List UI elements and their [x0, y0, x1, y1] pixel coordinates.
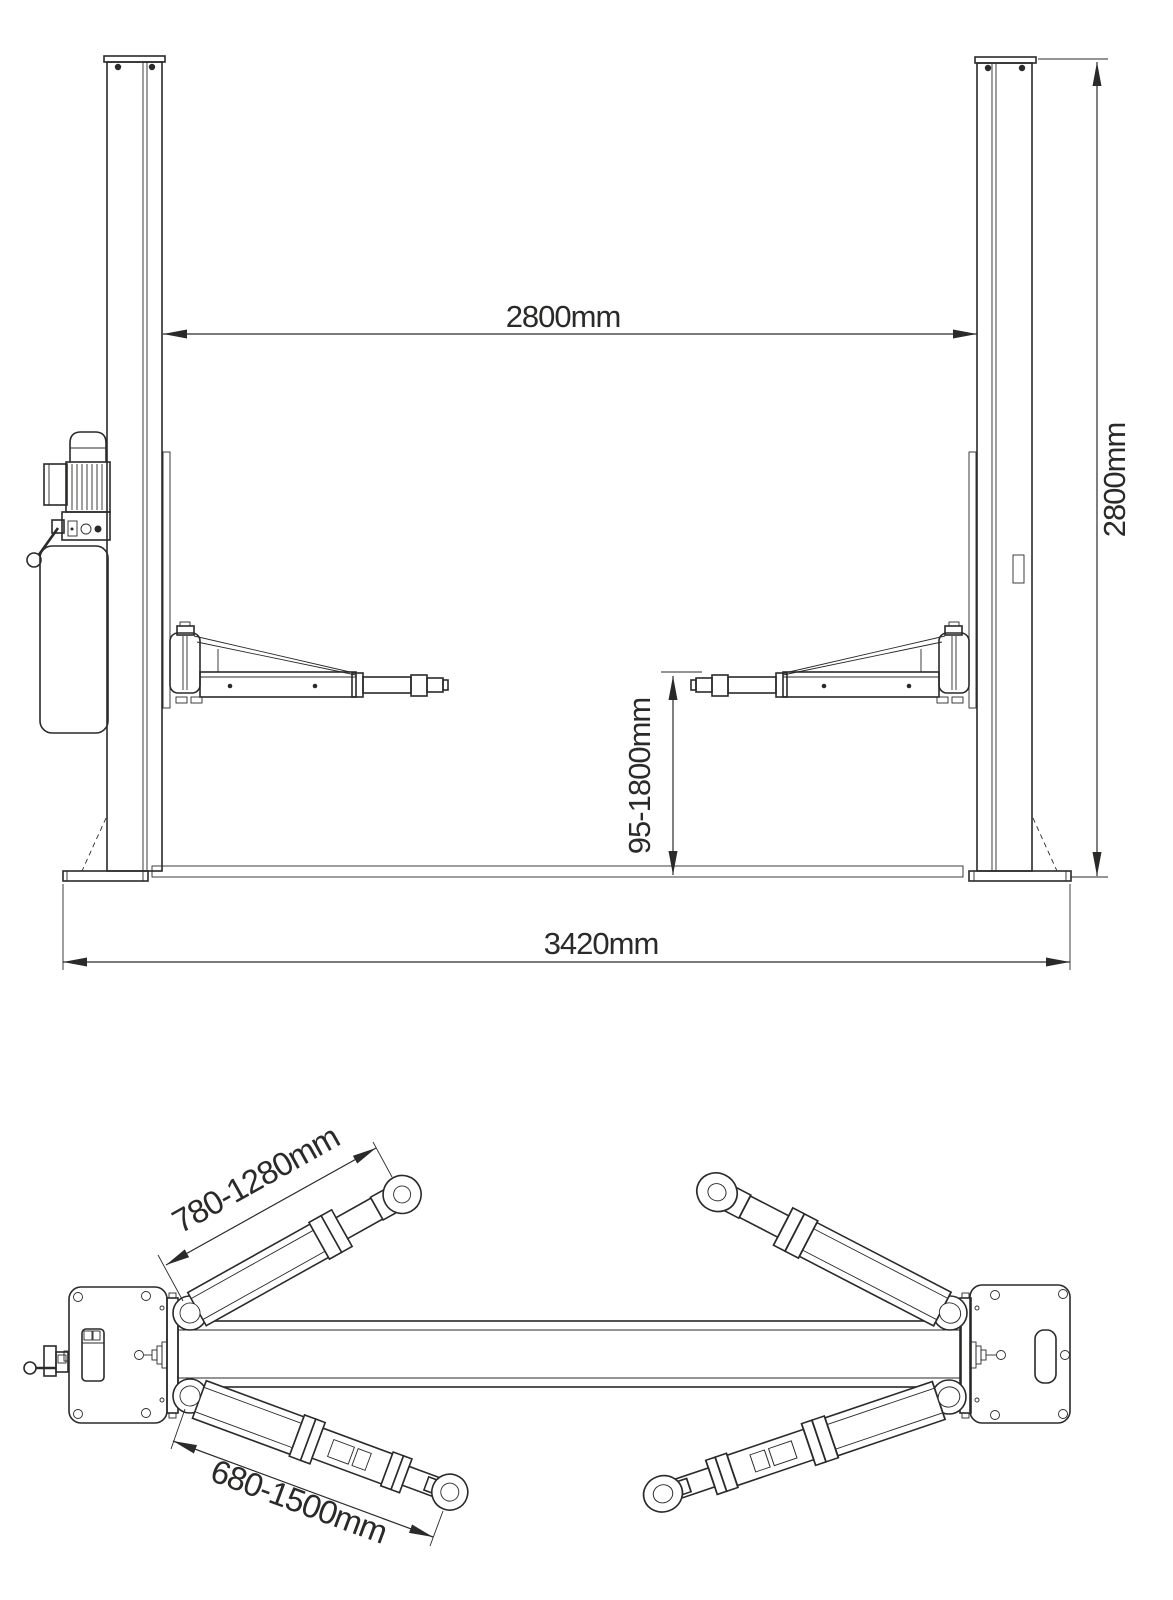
arm-extension: [728, 677, 776, 693]
lift-arm-left-elevation: [170, 622, 448, 703]
plan-cross-beam: [178, 1321, 961, 1387]
base-plate-right: [969, 871, 1071, 881]
dimension-label-column-spacing: 2800mm: [506, 299, 621, 334]
release-handle: [27, 520, 64, 567]
front-view: 2800mm 2800mm 95-1800mm 3420mm: [27, 56, 1132, 970]
carriage-rail-left: [163, 452, 170, 708]
floor-plate: [152, 866, 1108, 877]
right-column: [969, 57, 1057, 871]
motor-fins: [72, 464, 102, 510]
hydraulic-oil-tank: [40, 546, 108, 733]
dimension-overall-base-width: 3420mm: [63, 884, 1070, 970]
plan-spindle-left: [135, 1342, 168, 1368]
dimension-label-lifting-height-range: 95-1800mm: [622, 698, 657, 854]
plan-plate-slot: [1035, 1330, 1056, 1383]
plan-power-unit: [82, 1329, 104, 1381]
carriage-rail-right: [969, 452, 976, 708]
lift-arm-right-elevation: [691, 622, 969, 703]
plan-spindle-right: [971, 1342, 1006, 1368]
arm-carriage-left: [170, 633, 200, 693]
power-unit: [27, 432, 110, 733]
dimension-lifting-height-range: 95-1800mm: [622, 672, 702, 875]
two-post-lift-technical-drawing: 2800mm 2800mm 95-1800mm 3420mm: [0, 0, 1173, 1600]
plan-release-handle: [24, 1346, 69, 1376]
arm-pivot-housings: [173, 1296, 967, 1414]
arm-body: [783, 672, 939, 697]
long-arm-rear-right: [637, 1373, 966, 1521]
arm-body: [200, 672, 356, 697]
left-column: [82, 56, 170, 871]
lock-release-cover: [1013, 555, 1024, 583]
motor-junction-box: [44, 464, 67, 505]
dimension-overall-height: 2800mm: [1038, 59, 1132, 876]
arm-extension: [363, 677, 411, 693]
plan-carriage-left: [135, 1293, 179, 1418]
arm-carriage-right: [939, 633, 969, 693]
motor-cap: [70, 432, 106, 462]
drawing-canvas: 2800mm 2800mm 95-1800mm 3420mm: [0, 0, 1173, 1600]
short-arm-front-right: [689, 1164, 969, 1336]
dimension-label-overall-height: 2800mm: [1097, 423, 1132, 538]
plan-base-plate-right: [970, 1285, 1070, 1423]
dimension-column-spacing: 2800mm: [163, 299, 977, 334]
electric-motor: [66, 462, 110, 512]
dimension-label-overall-base-width: 3420mm: [544, 926, 659, 961]
base-plate-left: [63, 871, 148, 881]
top-view: 780-1280mm 680-1500mm: [24, 1118, 1070, 1551]
